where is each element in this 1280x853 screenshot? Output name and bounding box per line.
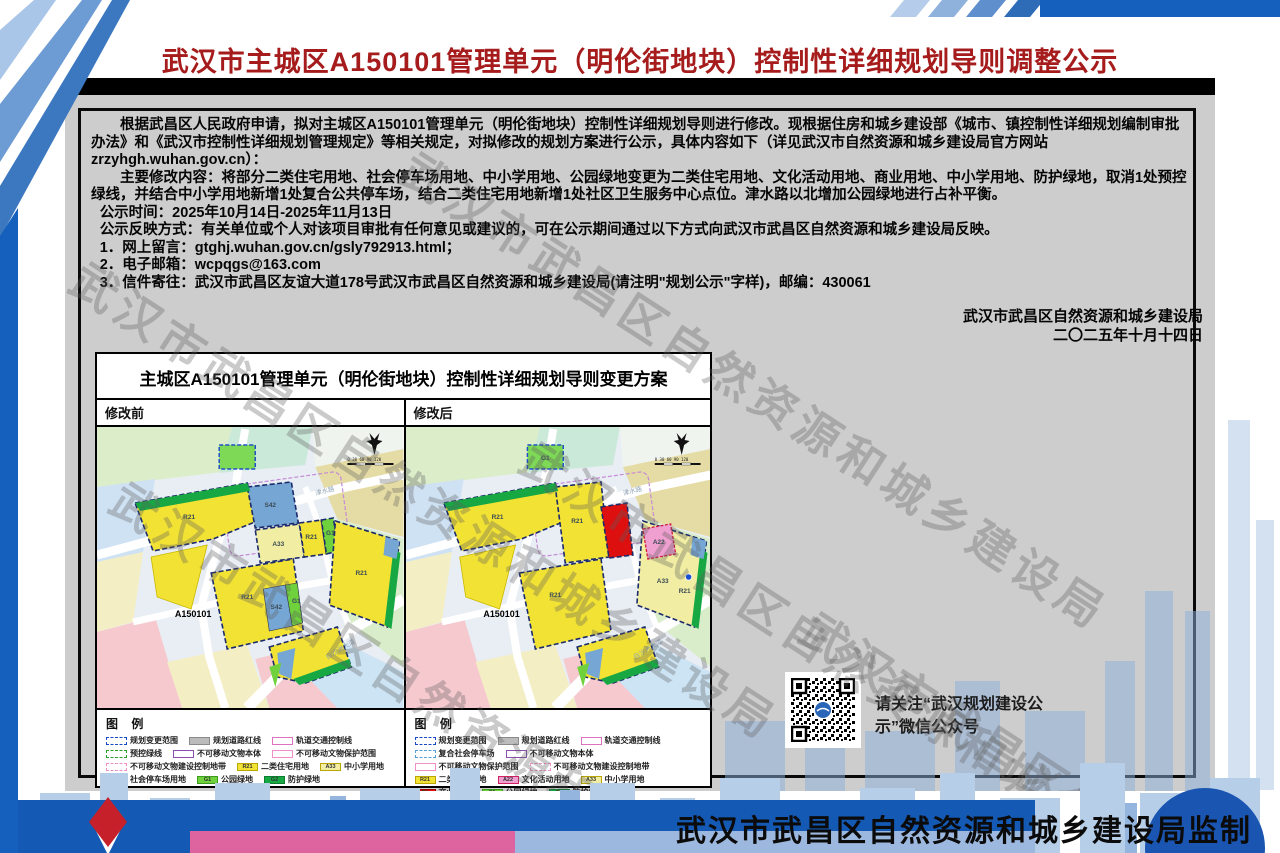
legend-label: 规划变更范围 xyxy=(130,735,178,746)
qr-code-image xyxy=(791,678,855,742)
notice-item-email: 2．电子邮箱：wcpqgs@163.com xyxy=(91,257,1187,275)
svg-text:R21: R21 xyxy=(241,594,253,601)
notice-time-line: 公示时间：2025年10月14日-2025年11月13日 xyxy=(91,205,1187,223)
svg-text:R21: R21 xyxy=(491,514,503,521)
notice-panel: 根据武昌区人民政府申请，拟对主城区A150101管理单元（明伦街地块）控制性详细… xyxy=(65,95,1215,791)
map-after-svg: 0 30 60 90 120 G1R21R21A22A33R21R21A1501… xyxy=(406,427,711,708)
map-after: 0 30 60 90 120 G1R21R21A22A33R21R21A1501… xyxy=(404,427,711,708)
legend-title: 图 例 xyxy=(415,715,702,732)
svg-text:R21: R21 xyxy=(571,518,583,525)
svg-text:S42: S42 xyxy=(270,604,282,611)
before-column-header: 修改前 xyxy=(97,400,404,425)
plan-panel-title: 主城区A150101管理单元（明伦街地块）控制性详细规划导则变更方案 xyxy=(97,354,710,398)
svg-text:R21: R21 xyxy=(549,592,561,599)
top-black-bar xyxy=(65,78,1215,95)
right-edge-building-decoration xyxy=(1228,420,1250,790)
qr-code xyxy=(785,672,861,748)
signature-block: 武汉市武昌区自然资源和城乡建设局 二〇二五年十月十四日 xyxy=(963,307,1203,345)
qr-caption: 请关注“武汉规划建设公示”微信公众号 xyxy=(875,693,1061,739)
legend-item: 规划道路红线 xyxy=(498,735,570,746)
notice-item-web: 1．网上留言：gtghj.wuhan.gov.cn/gsly792913.htm… xyxy=(91,240,1187,258)
clinic-point-marker xyxy=(685,574,691,580)
map-before-svg: 0 30 60 90 120 R21S42A33R21G1R21S42G1R21… xyxy=(97,427,404,708)
topleft-stripes-decoration xyxy=(0,0,140,260)
legend-swatch xyxy=(189,737,210,745)
svg-text:A33: A33 xyxy=(272,541,284,548)
legend-item: 规划变更范围 xyxy=(106,735,178,746)
signature-date: 二〇二五年十月十四日 xyxy=(963,326,1203,345)
svg-text:G1: G1 xyxy=(541,455,550,462)
map-before: 0 30 60 90 120 R21S42A33R21G1R21S42G1R21… xyxy=(97,427,404,708)
svg-text:G1: G1 xyxy=(292,598,301,605)
notice-body: 根据武昌区人民政府申请，拟对主城区A150101管理单元（明伦街地块）控制性详细… xyxy=(91,117,1187,292)
topright-stripes-decoration xyxy=(890,0,1280,17)
svg-text:A150101: A150101 xyxy=(175,609,212,619)
page-title: 武汉市主城区A150101管理单元（明伦街地块）控制性详细规划导则调整公示 xyxy=(0,40,1280,79)
legend-label: 规划变更范围 xyxy=(439,735,487,746)
svg-text:0 30 60 90 120: 0 30 60 90 120 xyxy=(654,457,688,462)
svg-text:R21: R21 xyxy=(305,534,317,541)
left-blue-bar xyxy=(0,208,18,853)
svg-text:G1: G1 xyxy=(326,530,335,537)
legend-label: 轨道交通控制线 xyxy=(605,735,661,746)
legend-item: 规划道路红线 xyxy=(189,735,261,746)
red-diamond-logo xyxy=(81,795,135,853)
svg-text:S42: S42 xyxy=(264,502,276,509)
legend-swatch xyxy=(415,737,436,745)
svg-text:0 30 60 90 120: 0 30 60 90 120 xyxy=(347,457,381,462)
notice-feedback-line: 公示反映方式：有关单位或个人对该项目审批有任何意见或建议的，可在公示期间通过以下… xyxy=(91,222,1187,240)
poster-page: 武汉市主城区A150101管理单元（明伦街地块）控制性详细规划导则调整公示 根据… xyxy=(0,0,1280,853)
svg-text:R21: R21 xyxy=(183,514,195,521)
after-column-header: 修改后 xyxy=(404,400,711,425)
svg-text:A150101: A150101 xyxy=(483,609,519,619)
svg-text:A33: A33 xyxy=(656,578,668,585)
footer-credit: 武汉市武昌区自然资源和城乡建设局监制 xyxy=(676,806,1252,850)
plan-comparison-panel: 主城区A150101管理单元（明伦街地块）控制性详细规划导则变更方案 修改前 修… xyxy=(95,352,712,788)
legend-label: 规划道路红线 xyxy=(522,735,570,746)
svg-text:R21: R21 xyxy=(678,588,690,595)
svg-text:R21: R21 xyxy=(355,570,367,577)
signature-org: 武汉市武昌区自然资源和城乡建设局 xyxy=(963,307,1203,326)
notice-paragraph-1: 根据武昌区人民政府申请，拟对主城区A150101管理单元（明伦街地块）控制性详细… xyxy=(91,117,1187,170)
plan-column-headers: 修改前 修改后 xyxy=(97,398,710,427)
svg-text:A22: A22 xyxy=(652,539,664,546)
notice-paragraph-2: 主要修改内容：将部分二类住宅用地、社会停车场用地、中小学用地、公园绿地变更为二类… xyxy=(91,170,1187,205)
legend-title: 图 例 xyxy=(106,715,395,732)
legend-swatch xyxy=(498,737,519,745)
legend-label: 轨道交通控制线 xyxy=(296,735,352,746)
notice-item-mail: 3．信件寄往：武汉市武昌区友谊大道178号武汉市武昌区自然资源和城乡建设局(请注… xyxy=(91,275,1187,293)
legend-item: 规划变更范围 xyxy=(415,735,487,746)
legend-swatch xyxy=(106,737,127,745)
legend-swatch xyxy=(581,737,602,745)
legend-swatch xyxy=(272,737,293,745)
legend-item: 轨道交通控制线 xyxy=(581,735,661,746)
legend-item: 轨道交通控制线 xyxy=(272,735,352,746)
bottom-pink-bar xyxy=(190,831,515,853)
plan-maps: 0 30 60 90 120 R21S42A33R21G1R21S42G1R21… xyxy=(97,427,710,708)
legend-label: 规划道路红线 xyxy=(213,735,261,746)
